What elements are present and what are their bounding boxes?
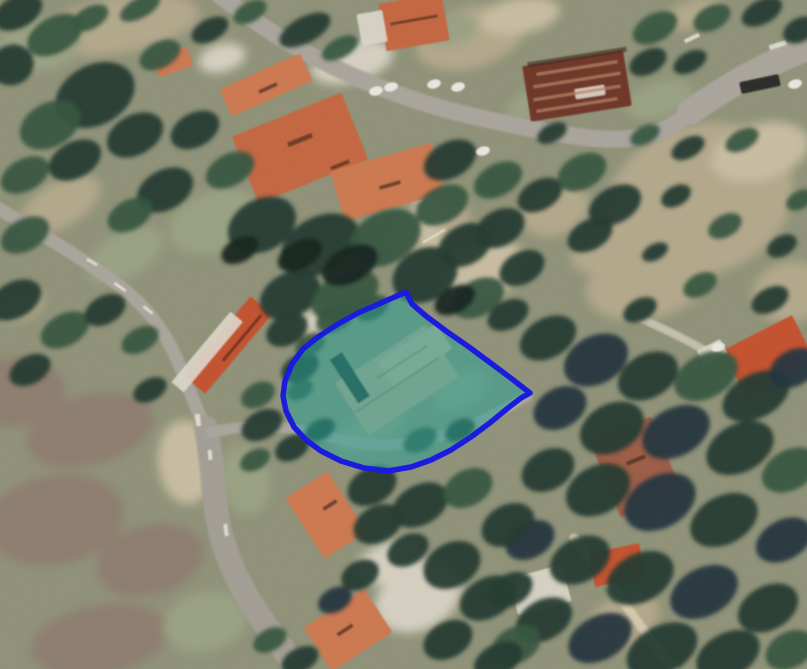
satellite-map-viewport [0, 0, 807, 669]
satellite-map-canvas[interactable] [0, 0, 807, 669]
noise-texture-overlay [0, 0, 807, 669]
